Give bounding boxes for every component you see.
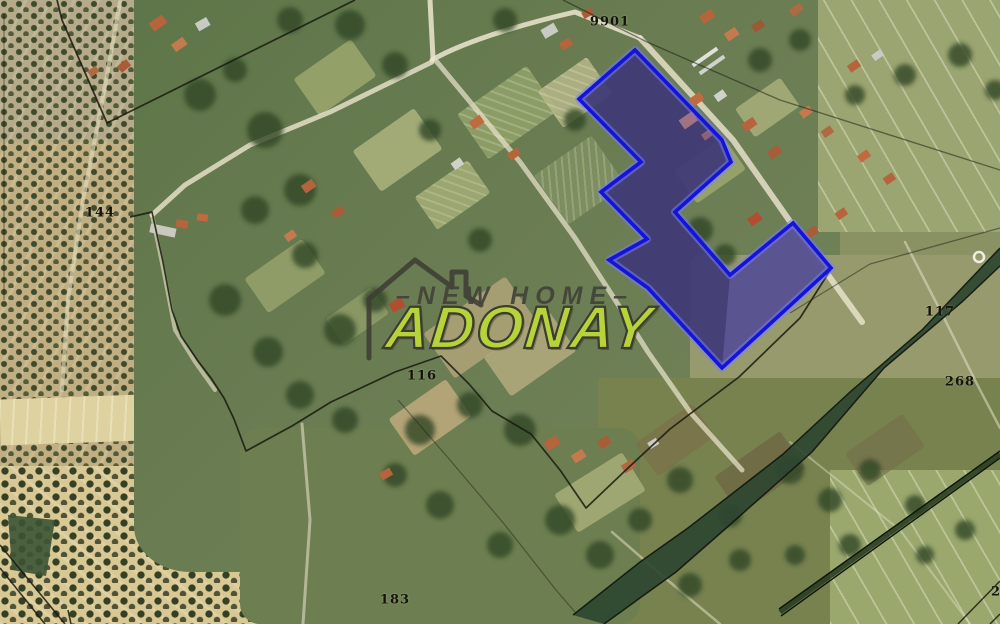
aerial-map: 99011441161172681832 –NEW HOME– ADONAY — [0, 0, 1000, 624]
parcel-number-label: 2 — [991, 585, 1000, 600]
dark-field-patch — [8, 515, 55, 576]
parcel-number-label: 144 — [85, 206, 115, 221]
parcel-number-label: 183 — [380, 593, 410, 608]
parcel-number-label: 117 — [925, 305, 955, 320]
parcel-number-label: 116 — [407, 369, 437, 384]
parcel-number-label: 268 — [945, 375, 975, 390]
watermark-adonay-text: ADONAY — [383, 296, 657, 359]
parcel-number-label: 9901 — [590, 15, 630, 30]
agency-watermark: –NEW HOME– ADONAY — [352, 252, 682, 367]
white-circle-marker — [974, 252, 984, 262]
